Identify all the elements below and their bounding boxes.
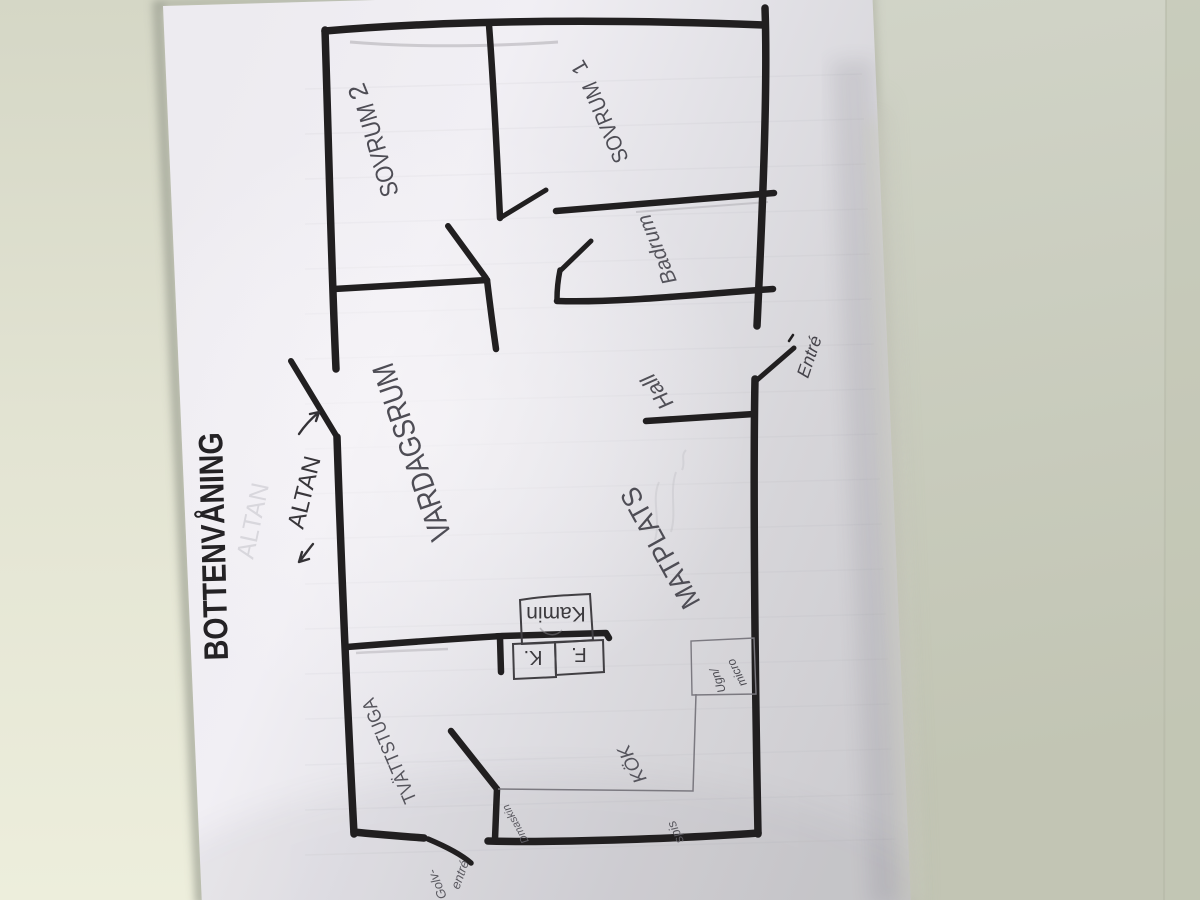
svg-text:BOTTENVÅNING: BOTTENVÅNING — [192, 432, 236, 661]
svg-text:K.: K. — [524, 646, 543, 668]
svg-text:Kamin: Kamin — [526, 602, 586, 625]
svg-text:F.: F. — [571, 643, 587, 665]
